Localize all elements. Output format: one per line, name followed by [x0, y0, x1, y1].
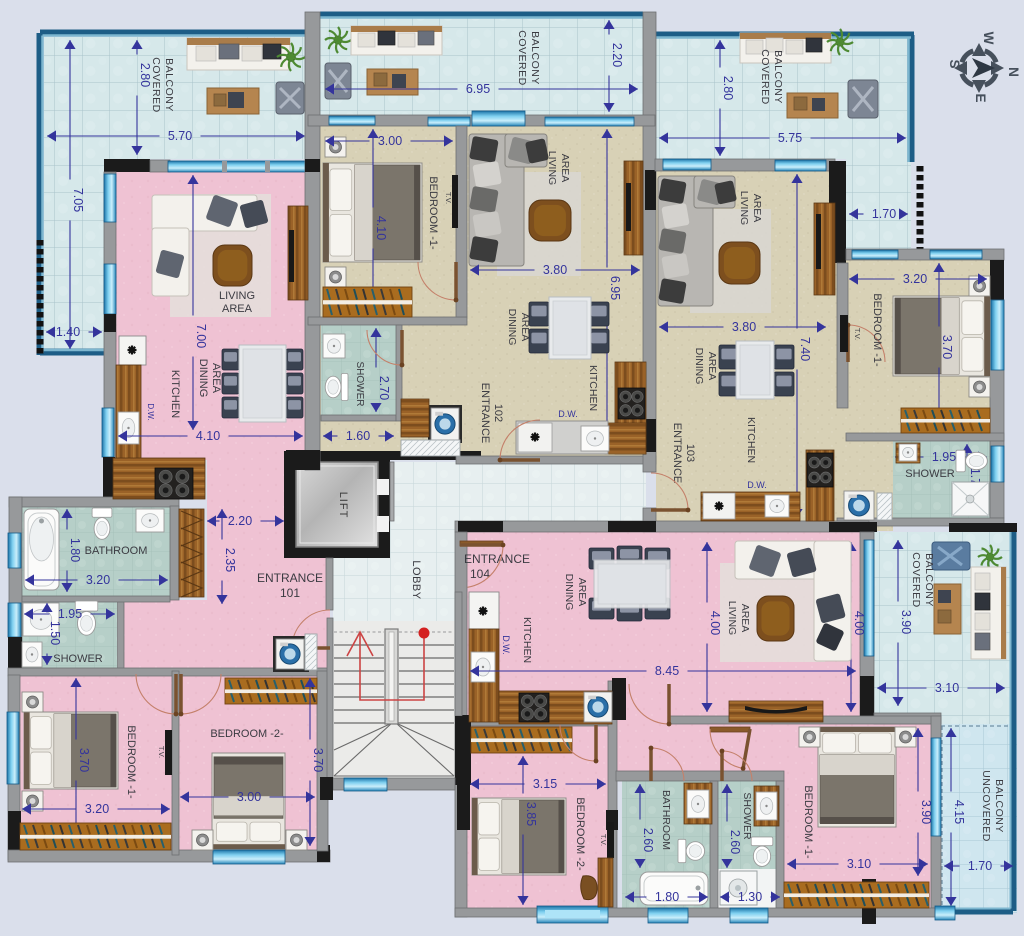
svg-text:UNCOVERED: UNCOVERED: [980, 770, 992, 842]
svg-text:2.80: 2.80: [721, 76, 735, 100]
svg-text:BEDROOM -1-: BEDROOM -1-: [802, 785, 814, 859]
svg-text:2.60: 2.60: [728, 830, 742, 854]
svg-text:2.20: 2.20: [228, 514, 252, 528]
svg-text:3.10: 3.10: [935, 681, 959, 695]
svg-text:T.V.: T.V.: [599, 834, 608, 846]
svg-text:AREA: AREA: [576, 578, 588, 607]
svg-text:DINING: DINING: [506, 309, 518, 346]
svg-text:BALCONY: BALCONY: [923, 553, 935, 607]
svg-text:1.95: 1.95: [58, 607, 82, 621]
svg-text:COVERED: COVERED: [759, 49, 771, 104]
svg-text:COVERED: COVERED: [910, 552, 922, 607]
svg-text:D.W.: D.W.: [558, 409, 578, 419]
svg-text:BALCONY: BALCONY: [993, 779, 1005, 833]
svg-text:1.50: 1.50: [48, 621, 62, 645]
svg-text:6.95: 6.95: [466, 82, 490, 96]
svg-text:7.40: 7.40: [798, 337, 812, 361]
svg-text:4.10: 4.10: [374, 216, 388, 240]
svg-text:T.V.: T.V.: [853, 328, 862, 340]
svg-text:AREA: AREA: [739, 604, 751, 633]
svg-text:4.00: 4.00: [708, 611, 722, 635]
svg-text:N: N: [1006, 67, 1021, 77]
svg-text:7.05: 7.05: [71, 188, 85, 212]
svg-text:BALCONY: BALCONY: [772, 50, 784, 104]
svg-text:1.70: 1.70: [968, 859, 992, 873]
svg-text:2.60: 2.60: [641, 828, 655, 852]
svg-text:2.20: 2.20: [610, 43, 624, 67]
svg-text:AREA: AREA: [559, 154, 571, 183]
svg-text:3.70: 3.70: [940, 335, 954, 359]
svg-text:ENTRANCE: ENTRANCE: [257, 571, 323, 585]
svg-text:4.15: 4.15: [952, 800, 966, 824]
svg-text:3.90: 3.90: [899, 610, 913, 634]
svg-text:ENTRANCE: ENTRANCE: [479, 383, 491, 444]
svg-text:BALCONY: BALCONY: [529, 31, 541, 85]
svg-text:3.80: 3.80: [543, 263, 567, 277]
svg-text:1.95: 1.95: [932, 450, 956, 464]
svg-text:DINING: DINING: [693, 348, 705, 385]
svg-text:1.70: 1.70: [872, 207, 896, 221]
svg-text:AREA: AREA: [210, 363, 222, 394]
svg-text:SHOWER: SHOWER: [354, 362, 365, 407]
svg-text:W: W: [981, 32, 996, 45]
svg-text:KITCHEN: KITCHEN: [169, 370, 181, 418]
svg-text:2.70: 2.70: [377, 376, 391, 400]
svg-text:1.30: 1.30: [738, 890, 762, 904]
svg-text:3.90: 3.90: [919, 800, 933, 824]
svg-text:7.00: 7.00: [194, 324, 208, 348]
svg-text:BALCONY: BALCONY: [163, 58, 175, 112]
svg-text:D.W.: D.W.: [747, 480, 767, 490]
svg-text:D.W.: D.W.: [501, 635, 511, 655]
svg-text:3.10: 3.10: [847, 857, 871, 871]
svg-text:AREA: AREA: [222, 303, 253, 315]
svg-text:LIVING: LIVING: [219, 290, 255, 302]
svg-text:AREA: AREA: [751, 194, 763, 223]
svg-text:3.00: 3.00: [237, 790, 261, 804]
svg-text:1.80: 1.80: [655, 890, 679, 904]
svg-text:BEDROOM -2-: BEDROOM -2-: [210, 728, 284, 740]
svg-text:DINING: DINING: [563, 574, 575, 611]
svg-text:BEDROOM -1-: BEDROOM -1-: [871, 293, 883, 367]
svg-text:SHOWER: SHOWER: [53, 653, 103, 665]
svg-text:101: 101: [280, 586, 300, 600]
svg-text:LOBBY: LOBBY: [410, 560, 422, 599]
svg-text:2.35: 2.35: [223, 548, 237, 572]
svg-text:E: E: [973, 93, 988, 102]
svg-text:BATHROOM: BATHROOM: [85, 545, 148, 557]
svg-text:LIVING: LIVING: [726, 601, 738, 635]
svg-text:LIVING: LIVING: [738, 191, 750, 225]
svg-text:8.45: 8.45: [655, 664, 679, 678]
svg-text:3.20: 3.20: [85, 802, 109, 816]
svg-text:6.95: 6.95: [608, 276, 622, 300]
svg-text:1.40: 1.40: [56, 325, 80, 339]
svg-text:103: 103: [684, 444, 696, 462]
svg-text:5.70: 5.70: [168, 129, 192, 143]
svg-text:3.70: 3.70: [311, 748, 325, 772]
svg-text:2.80: 2.80: [138, 63, 152, 87]
svg-text:KITCHEN: KITCHEN: [521, 617, 533, 663]
svg-text:KITCHEN: KITCHEN: [587, 365, 599, 411]
svg-text:5.75: 5.75: [778, 131, 802, 145]
svg-text:LIVING: LIVING: [546, 151, 558, 185]
svg-text:3.15: 3.15: [533, 777, 557, 791]
svg-text:KITCHEN: KITCHEN: [745, 417, 757, 463]
svg-text:S: S: [947, 59, 962, 68]
svg-text:1.80: 1.80: [68, 538, 82, 562]
svg-text:3.20: 3.20: [86, 573, 110, 587]
svg-text:3.85: 3.85: [524, 802, 538, 826]
svg-text:ENTRANCE: ENTRANCE: [671, 423, 683, 484]
svg-text:3.20: 3.20: [903, 272, 927, 286]
svg-text:DINING: DINING: [197, 359, 209, 398]
svg-text:T.V.: T.V.: [157, 746, 166, 758]
svg-text:COVERED: COVERED: [516, 30, 528, 85]
svg-text:4.10: 4.10: [196, 429, 220, 443]
svg-text:SHOWER: SHOWER: [905, 468, 955, 480]
svg-text:3.70: 3.70: [77, 748, 91, 772]
svg-text:4.00: 4.00: [852, 611, 866, 635]
svg-text:BEDROOM -1-: BEDROOM -1-: [125, 725, 137, 799]
svg-text:ENTRANCE: ENTRANCE: [464, 552, 530, 566]
svg-text:D.W.: D.W.: [146, 403, 155, 420]
svg-text:BATHROOM: BATHROOM: [660, 790, 672, 850]
svg-text:T.V.: T.V.: [444, 192, 453, 204]
svg-text:AREA: AREA: [519, 313, 531, 342]
svg-text:BEDROOM -2-: BEDROOM -2-: [574, 797, 586, 871]
svg-text:102: 102: [492, 404, 504, 422]
svg-text:3.00: 3.00: [378, 134, 402, 148]
svg-text:1.60: 1.60: [346, 429, 370, 443]
svg-text:3.80: 3.80: [732, 320, 756, 334]
svg-text:LIFT: LIFT: [337, 492, 349, 519]
svg-text:AREA: AREA: [706, 352, 718, 381]
svg-text:BEDROOM -1-: BEDROOM -1-: [427, 176, 439, 250]
